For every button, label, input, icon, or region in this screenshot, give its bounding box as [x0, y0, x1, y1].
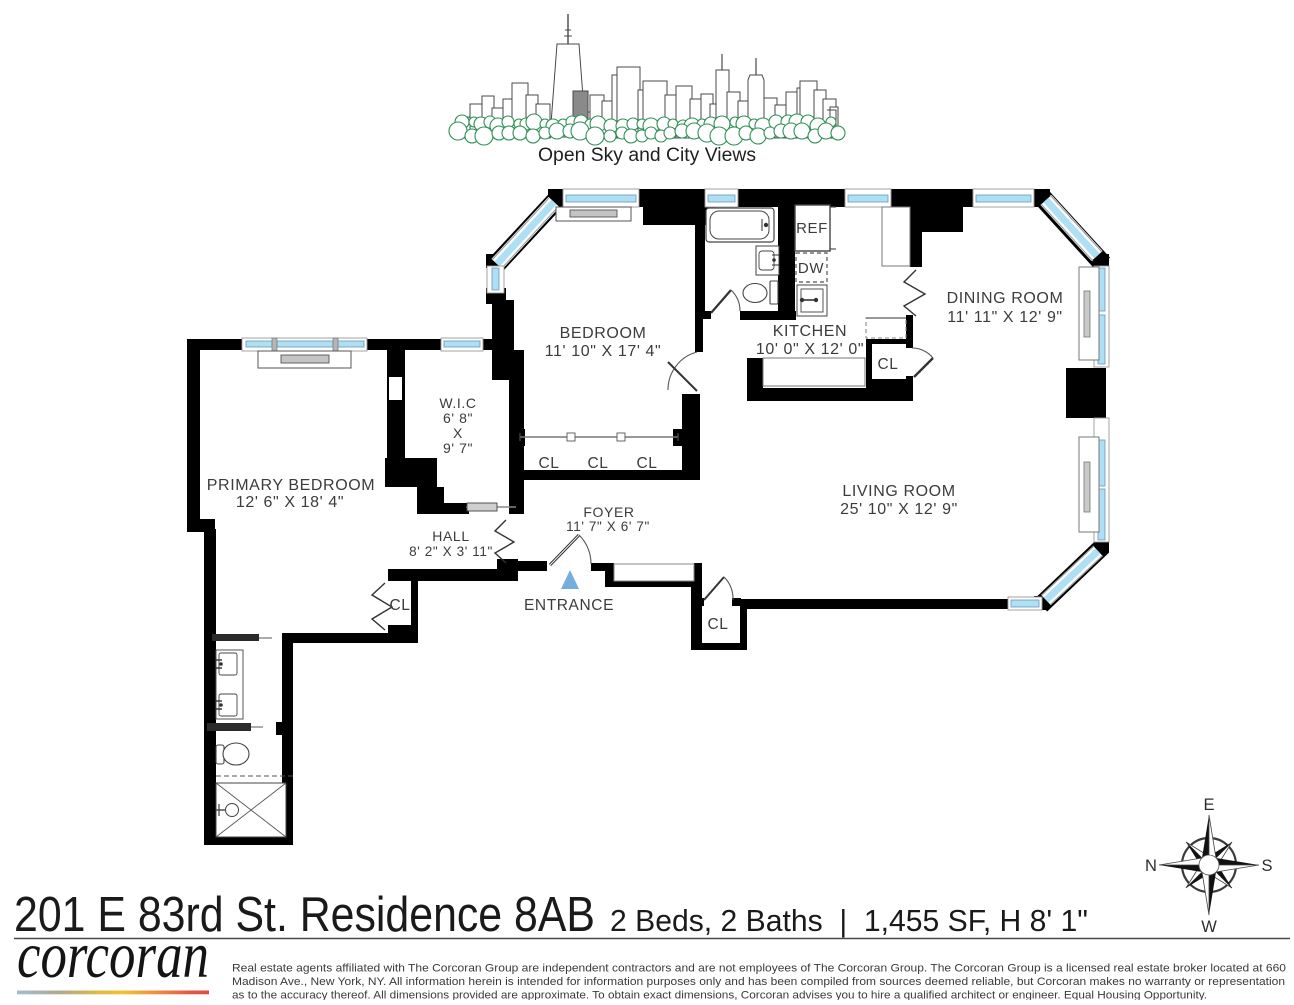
svg-text:11' 10" X 17' 4": 11' 10" X 17' 4" [545, 343, 662, 360]
svg-text:2 Beds, 2 Baths | 1,455 SF,: 2 Beds, 2 Baths | 1,455 SF, H 8' 1" [610, 903, 1088, 938]
svg-text:CL: CL [538, 455, 559, 472]
svg-text:E: E [1203, 796, 1214, 814]
svg-text:FOYER: FOYER [583, 504, 634, 520]
svg-text:LIVING ROOM: LIVING ROOM [842, 483, 955, 500]
svg-text:as to the accuracy thereof. Al: as to the accuracy thereof. All dimensio… [232, 990, 1207, 1001]
svg-text:25' 10" X 12' 9": 25' 10" X 12' 9" [840, 501, 958, 518]
svg-text:11' 7" X 6' 7": 11' 7" X 6' 7" [566, 519, 650, 534]
svg-text:DINING ROOM: DINING ROOM [947, 290, 1064, 307]
svg-text:CL: CL [636, 455, 657, 472]
svg-text:Madison Ave., New York, NY. Al: Madison Ave., New York, NY. All informat… [232, 976, 1285, 988]
svg-text:BEDROOM: BEDROOM [560, 325, 647, 342]
svg-text:12' 6" X 18' 4": 12' 6" X 18' 4" [236, 494, 344, 511]
svg-text:ENTRANCE: ENTRANCE [524, 597, 614, 614]
svg-text:9' 7": 9' 7" [443, 440, 473, 456]
svg-text:PRIMARY BEDROOM: PRIMARY BEDROOM [207, 477, 375, 494]
svg-text:corcoran: corcoran [17, 919, 209, 992]
svg-text:CL: CL [877, 356, 898, 373]
svg-text:S: S [1261, 857, 1272, 875]
svg-text:CL: CL [587, 455, 608, 472]
svg-text:Real estate agents affiliated: Real estate agents affiliated with The C… [232, 963, 1286, 975]
svg-text:DW: DW [798, 260, 824, 277]
svg-text:11' 11" X 12' 9": 11' 11" X 12' 9" [947, 309, 1062, 326]
svg-text:W.I.C: W.I.C [439, 395, 476, 411]
svg-text:X: X [453, 425, 463, 441]
svg-text:N: N [1145, 857, 1157, 875]
svg-text:8' 2" X 3' 11": 8' 2" X 3' 11" [409, 544, 493, 559]
svg-text:KITCHEN: KITCHEN [773, 323, 847, 340]
svg-text:10' 0" X 12' 0": 10' 0" X 12' 0" [756, 341, 864, 358]
svg-text:CL: CL [389, 597, 410, 614]
svg-text:HALL: HALL [432, 528, 469, 544]
svg-text:W: W [1201, 918, 1217, 936]
svg-text:Open Sky and City Views: Open Sky and City Views [538, 145, 756, 166]
svg-text:6' 8": 6' 8" [443, 410, 473, 426]
svg-text:CL: CL [707, 616, 728, 633]
svg-text:REF: REF [796, 220, 828, 237]
